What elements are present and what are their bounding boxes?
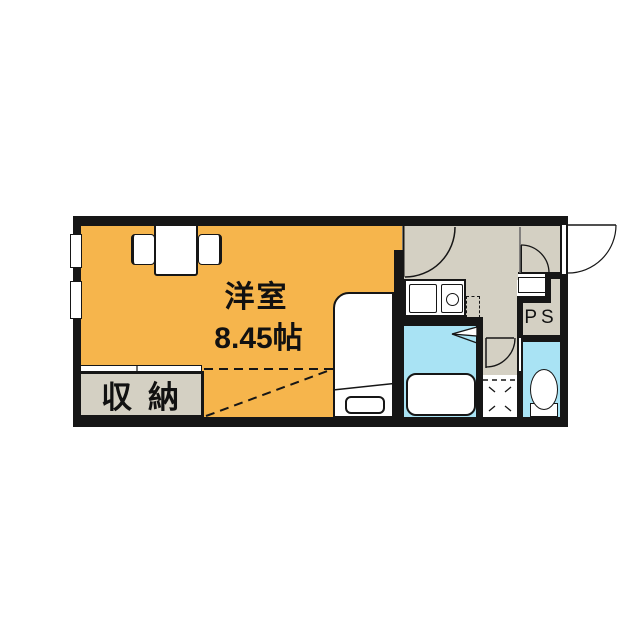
dining-table — [154, 222, 198, 276]
chair-left — [131, 234, 155, 265]
toilet-bowl — [530, 369, 558, 410]
wall-top — [73, 216, 568, 226]
entrance-doorway — [560, 225, 568, 274]
wall-under-counter — [394, 317, 483, 326]
refrigerator-space — [466, 296, 480, 318]
wall-bottom — [73, 417, 568, 427]
chair-right — [198, 234, 222, 265]
main-room-size: 8.45帖 — [186, 318, 331, 352]
wall-room-divider — [394, 250, 404, 418]
toilet-doorway — [517, 338, 523, 371]
bed-foot-shelf — [345, 396, 385, 414]
floor-plan-canvas: 洋室 8.45帖 収納 PS — [0, 0, 640, 640]
hallway-floor-lower — [483, 326, 517, 375]
main-room-label: 洋室 — [196, 277, 317, 311]
kitchen-sink — [409, 284, 437, 313]
entrance-door-arc — [568, 225, 616, 273]
closet-label: 収納 — [76, 371, 204, 418]
window-upper — [70, 234, 82, 268]
wall-bathroom-hall — [476, 326, 483, 418]
shoe-cabinet — [518, 277, 546, 293]
line-notch-top — [518, 272, 545, 274]
washing-machine-space — [483, 375, 517, 418]
wall-ps-bottom — [517, 335, 568, 342]
stove-burner-icon — [446, 293, 459, 306]
window-lower — [70, 281, 82, 319]
wall-washer-toilet — [517, 371, 523, 418]
bathtub — [406, 373, 476, 416]
pipe-space-label: PS — [517, 302, 561, 334]
